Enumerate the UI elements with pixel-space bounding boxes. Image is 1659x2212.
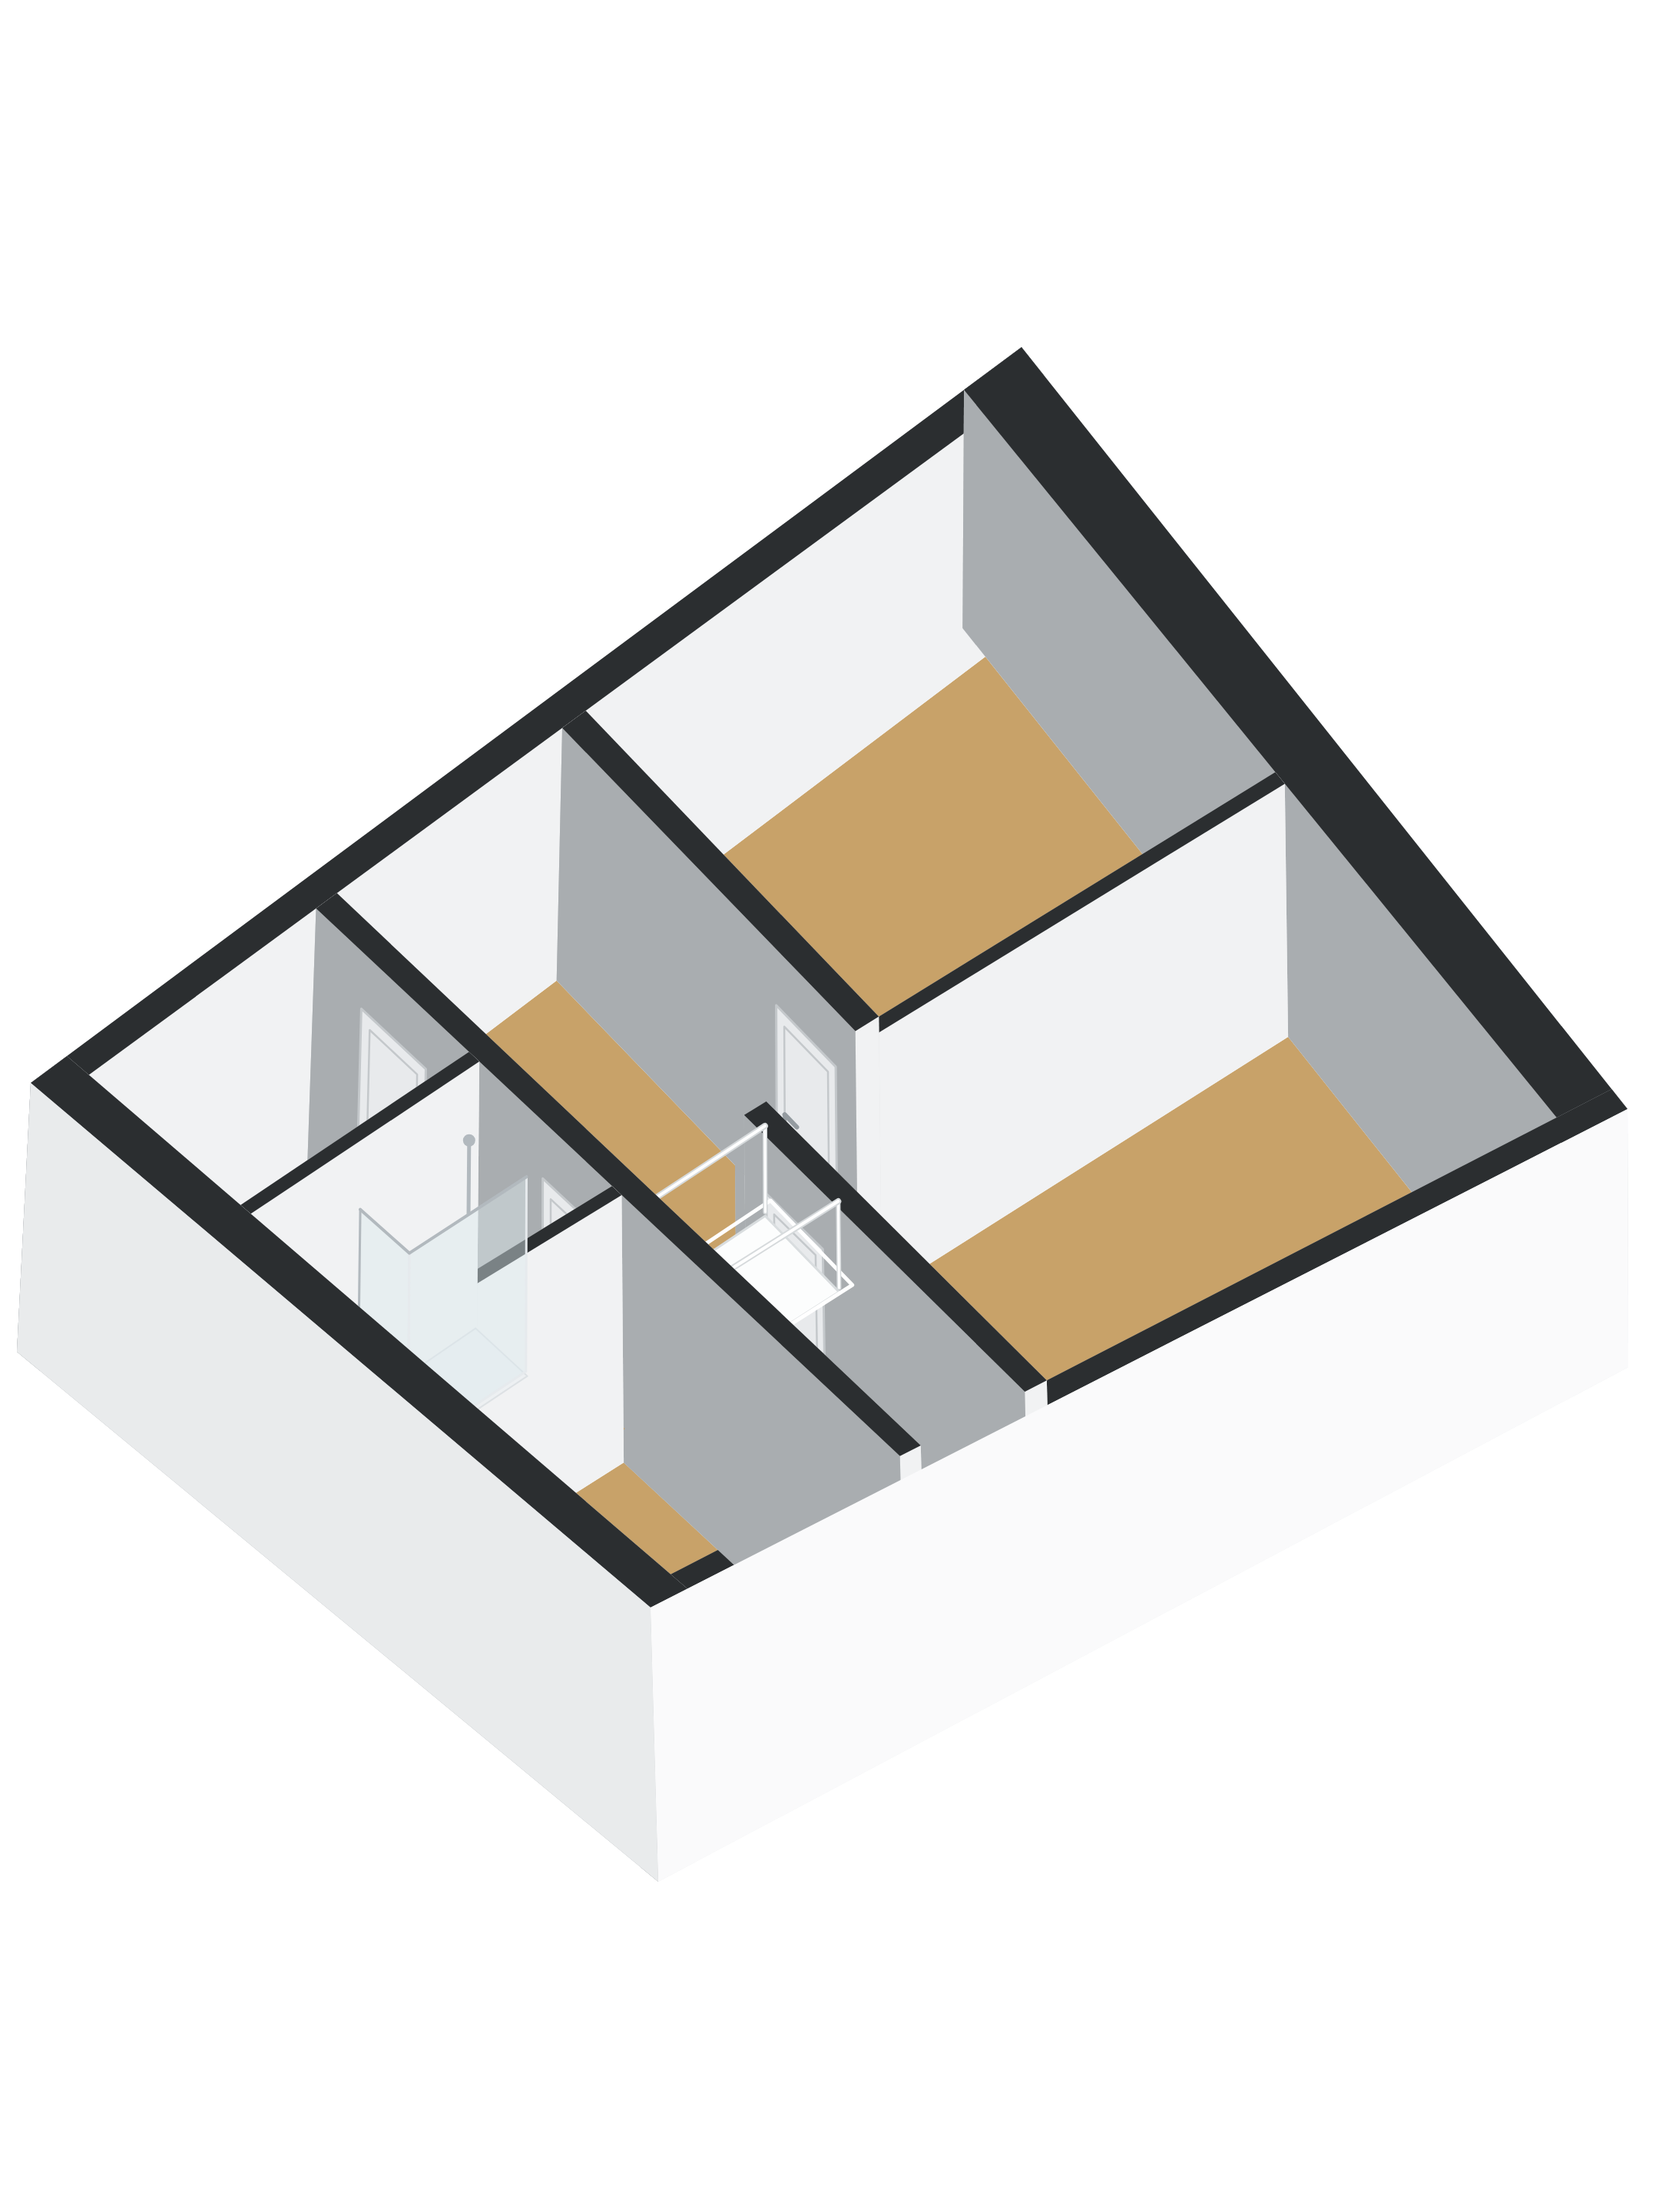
floorplan-3d-render — [0, 0, 1659, 2212]
floorplan-viewport — [0, 0, 1659, 2212]
shower-head-icon — [463, 1134, 475, 1147]
